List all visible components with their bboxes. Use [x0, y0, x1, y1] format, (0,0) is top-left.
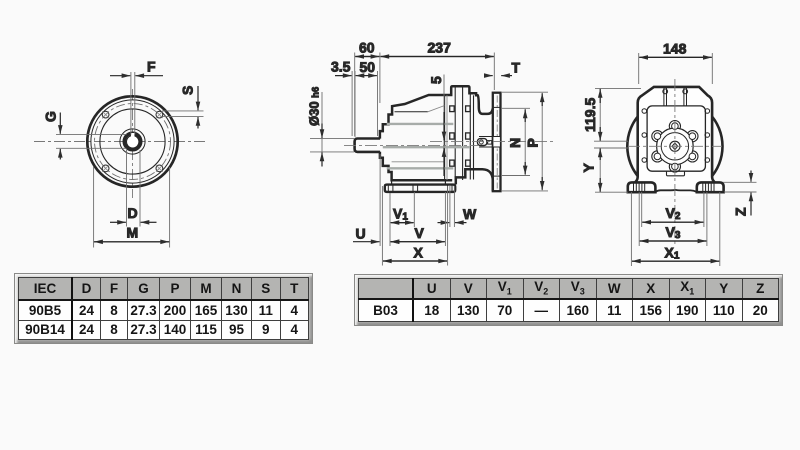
svg-text:5: 5	[428, 76, 444, 84]
svg-text:M: M	[127, 225, 139, 241]
svg-text:F: F	[147, 59, 156, 75]
svg-text:X1: X1	[665, 244, 680, 261]
svg-text:D: D	[128, 205, 138, 221]
svg-text:T: T	[512, 60, 521, 76]
svg-text:V3: V3	[666, 224, 681, 241]
svg-text:3.5: 3.5	[331, 59, 351, 75]
svg-text:V1: V1	[393, 206, 408, 223]
svg-text:U: U	[356, 226, 366, 242]
svg-text:W: W	[463, 206, 477, 222]
svg-text:148: 148	[663, 40, 687, 56]
svg-text:N: N	[507, 138, 523, 148]
svg-text:V2: V2	[666, 205, 681, 222]
svg-text:119.5: 119.5	[582, 98, 598, 132]
svg-text:S: S	[180, 86, 196, 95]
svg-text:237: 237	[428, 40, 452, 56]
svg-text:X: X	[414, 245, 424, 261]
svg-text:P: P	[524, 138, 540, 147]
svg-text:Z: Z	[733, 207, 749, 216]
svg-text:60: 60	[359, 40, 375, 56]
svg-text:Y: Y	[581, 163, 597, 173]
svg-text:Ø30 h6: Ø30 h6	[307, 87, 322, 126]
svg-text:50: 50	[360, 59, 376, 75]
svg-text:G: G	[43, 111, 59, 122]
svg-text:V: V	[415, 225, 425, 241]
